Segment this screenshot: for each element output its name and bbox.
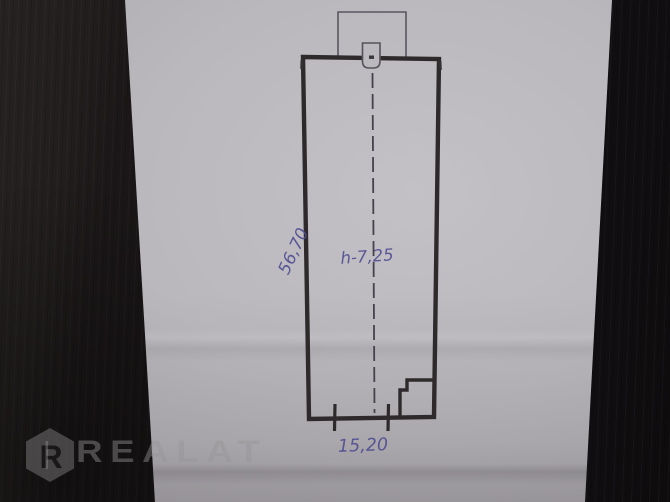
- dimension-label-bottom: 15,20: [338, 435, 389, 457]
- center-axis-dashed-line: [373, 73, 375, 413]
- room-outline: [303, 57, 439, 419]
- door-marker-dot: [369, 56, 374, 59]
- stairs-outline: [400, 380, 435, 417]
- floor-plan-sketch: 56,70 h-7,25 15,20: [0, 0, 670, 502]
- dimension-label-height: h-7,25: [340, 245, 394, 268]
- corner-stub-right: [440, 61, 441, 70]
- tick-mark-left: [335, 404, 336, 431]
- tick-mark-right: [388, 404, 389, 431]
- corner-stub-left: [302, 60, 303, 69]
- photo-of-floor-plan: 56,70 h-7,25 15,20 R REALAT: [0, 0, 670, 502]
